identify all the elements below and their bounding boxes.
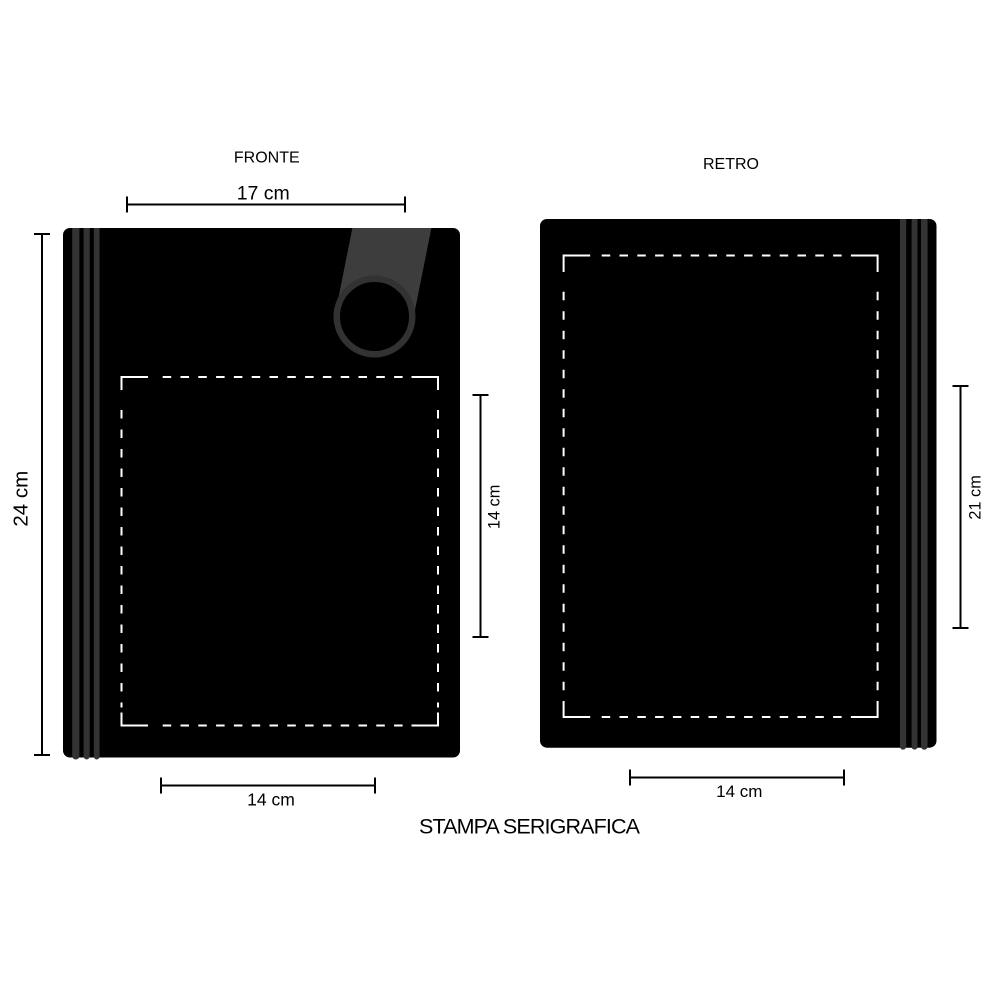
svg-text:21 cm: 21 cm <box>966 475 984 519</box>
svg-text:FRONTE: FRONTE <box>234 150 300 167</box>
svg-text:STAMPA SERIGRAFICA: STAMPA SERIGRAFICA <box>419 815 641 839</box>
svg-text:14 cm: 14 cm <box>486 485 504 529</box>
svg-text:17 cm: 17 cm <box>237 183 290 205</box>
svg-text:14 cm: 14 cm <box>247 790 295 810</box>
svg-text:24 cm: 24 cm <box>10 471 33 527</box>
svg-text:14 cm: 14 cm <box>716 782 762 801</box>
svg-text:RETRO: RETRO <box>703 156 759 173</box>
